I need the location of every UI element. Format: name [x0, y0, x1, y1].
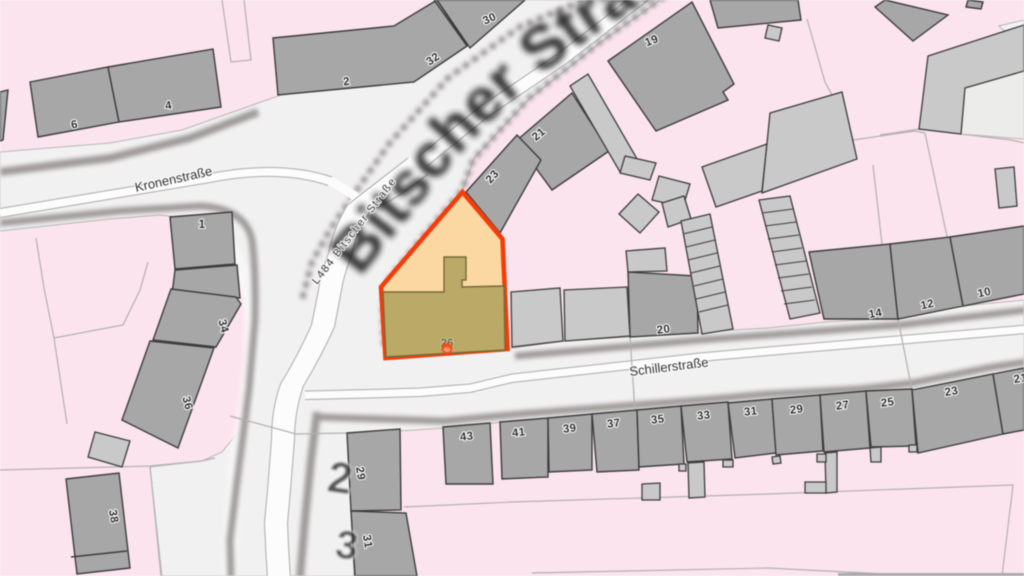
svg-text:38: 38: [106, 509, 120, 525]
svg-text:41: 41: [511, 426, 526, 439]
svg-text:21: 21: [1013, 372, 1024, 386]
svg-text:20: 20: [656, 323, 671, 337]
svg-text:25: 25: [880, 396, 895, 410]
svg-text:37: 37: [606, 417, 621, 430]
svg-text:31: 31: [360, 534, 374, 550]
svg-text:33: 33: [696, 409, 711, 422]
svg-text:43: 43: [459, 430, 474, 443]
svg-text:29: 29: [353, 466, 367, 481]
svg-text:35: 35: [650, 413, 665, 426]
svg-text:39: 39: [562, 422, 577, 435]
svg-text:1: 1: [199, 219, 206, 231]
svg-text:23: 23: [944, 385, 959, 399]
svg-text:29: 29: [789, 403, 804, 417]
svg-text:14: 14: [868, 307, 884, 321]
svg-text:31: 31: [743, 405, 758, 418]
svg-text:27: 27: [835, 399, 850, 413]
